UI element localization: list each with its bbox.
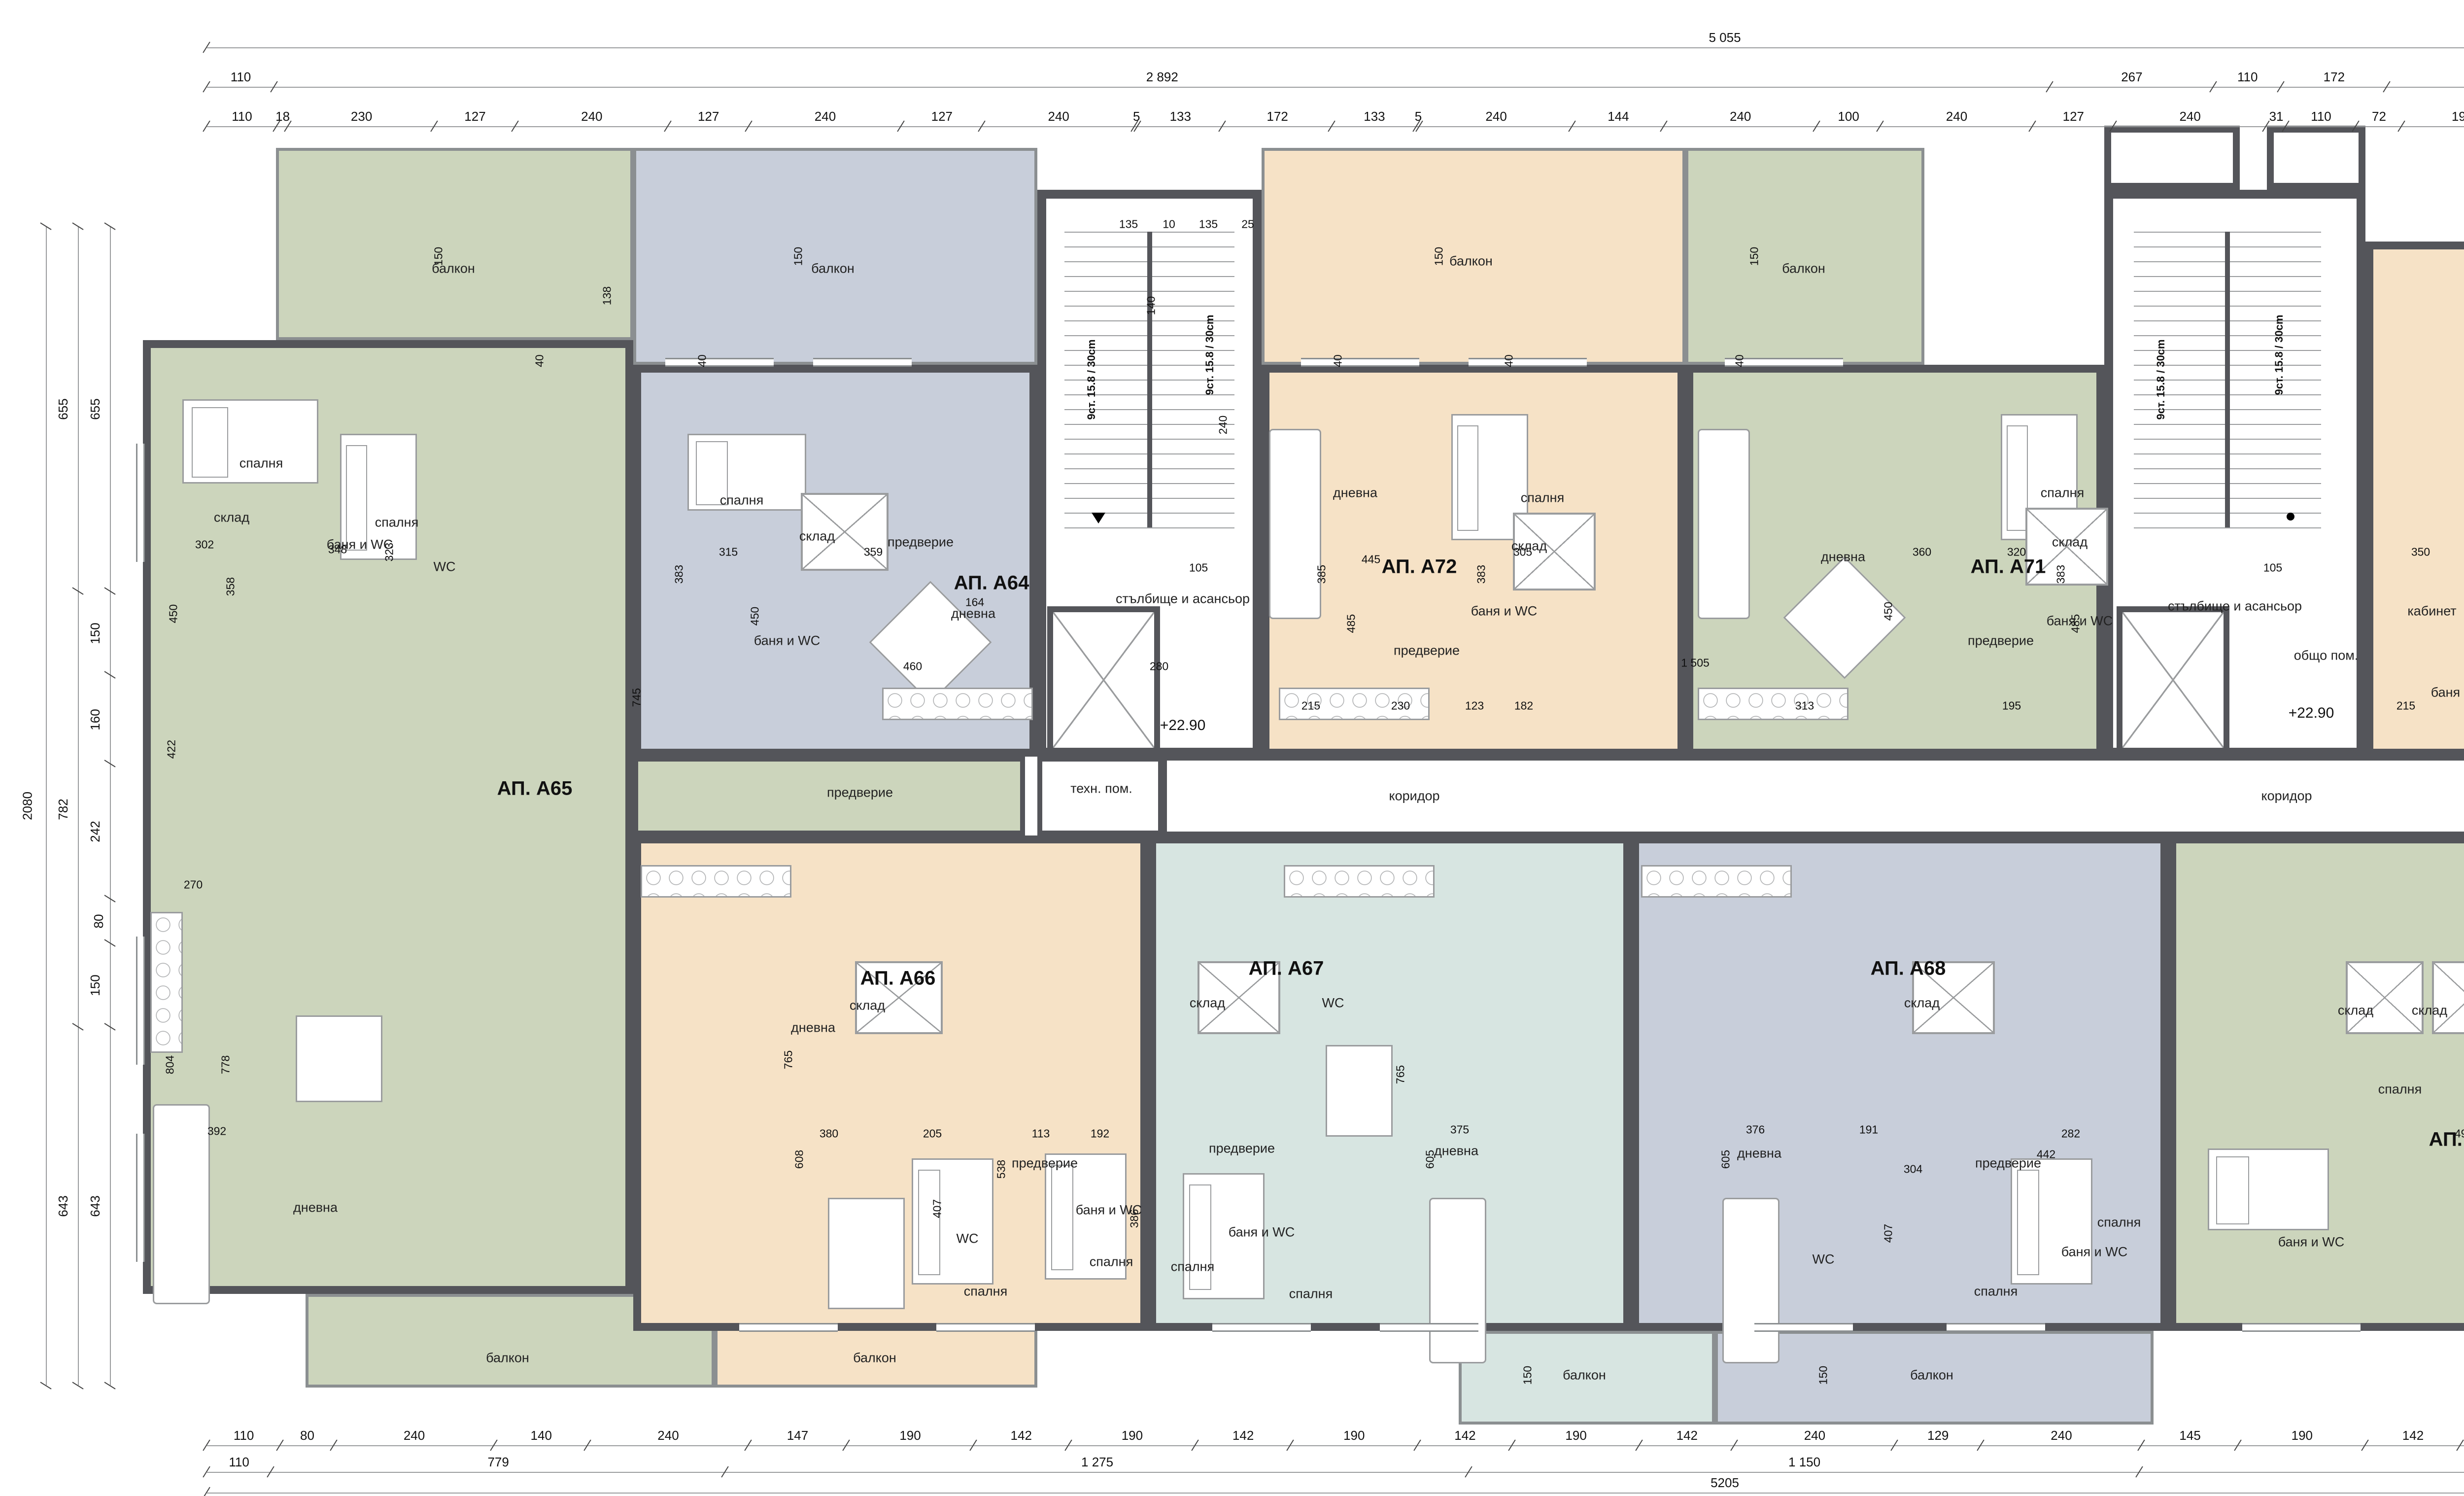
room-label: спалня — [720, 493, 763, 508]
dimension-number: 383 — [2054, 565, 2068, 584]
sofa-icon — [1429, 1198, 1486, 1363]
dim-segment: 242 — [91, 764, 111, 899]
storage-icon — [2432, 961, 2464, 1034]
dimension-number: 40 — [1733, 354, 1746, 367]
dim-segment: 5205 — [207, 1476, 2464, 1494]
room-label: дневна — [1333, 486, 1377, 501]
room-label: спалня — [2041, 486, 2084, 501]
dimension-number: 1 505 — [1681, 657, 1710, 670]
dimension-number: 359 — [864, 546, 883, 559]
stair-divider — [1147, 232, 1152, 527]
room-label: балкон — [486, 1351, 529, 1366]
dim-value: 240 — [815, 109, 836, 124]
dimension-number: 605 — [1719, 1150, 1733, 1169]
room-label: спалня — [240, 456, 283, 471]
dim-segment: 127 — [668, 108, 749, 127]
dim-segment: 190 — [2238, 1427, 2365, 1446]
dimension-number: 215 — [2396, 699, 2415, 713]
dim-value: 655 — [56, 398, 71, 419]
dim-value: 147 — [787, 1428, 808, 1443]
dim-segment: 655 — [59, 227, 79, 591]
dimension-number: 123 — [1465, 699, 1484, 713]
room-label: коридор — [2261, 789, 2312, 804]
room-label: дневна — [293, 1200, 338, 1216]
dimension-number: 348 — [328, 543, 347, 557]
room-label: баня и WC — [2431, 685, 2464, 700]
dimension-number: 608 — [793, 1150, 806, 1169]
dim-segment: 142 — [1196, 1427, 1291, 1446]
dim-value: 31 — [2269, 109, 2284, 124]
dim-segment: 1 275 — [725, 1454, 1469, 1473]
dimension-number: 150 — [1521, 1366, 1535, 1385]
dim-value: 144 — [1608, 109, 1629, 124]
bed-icon — [912, 1158, 993, 1285]
dim-segment: 2 892 — [274, 69, 2050, 88]
room-label: предверие — [1968, 633, 2034, 649]
dim-segment: 190 — [2402, 108, 2464, 127]
dim-value: 643 — [56, 1195, 71, 1217]
dimension-number: 150 — [1433, 247, 1446, 266]
room-label: баня и WC — [754, 633, 820, 649]
room-label: стълбище и асансьор — [2168, 599, 2302, 614]
dim-segment: 127 — [901, 108, 982, 127]
dim-segment: 142 — [974, 1427, 1069, 1446]
dimension-number: 150 — [1817, 1366, 1830, 1385]
room-label: спалня — [2378, 1082, 2422, 1097]
dimension-number: 407 — [1882, 1224, 1895, 1243]
dim-segment: 643 — [59, 1027, 79, 1385]
dim-value: 127 — [2063, 109, 2084, 124]
dimension-number: 40 — [533, 354, 547, 367]
dim-value: 190 — [2292, 1428, 2313, 1443]
room-label: стълбище и асансьор — [1116, 591, 1250, 607]
room-label: склад — [2052, 535, 2088, 550]
dim-segment: 172 — [1223, 108, 1332, 127]
dim-segment: 127 — [435, 108, 515, 127]
dimension-number: 302 — [195, 538, 214, 552]
dim-value: 127 — [931, 109, 953, 124]
room-label: баня и WC — [1229, 1225, 1295, 1240]
dim-value: 2 892 — [1146, 70, 1178, 85]
apartment-label: АП. А66 — [860, 968, 936, 990]
dimension-number: 150 — [1748, 247, 1761, 266]
dimension-number: 240 — [1217, 416, 1230, 434]
window-icon — [665, 358, 774, 367]
dimension-number: 450 — [1882, 602, 1895, 621]
apartment-label: АП. А65 — [497, 778, 573, 800]
kitchen-counter-icon — [150, 912, 183, 1053]
dim-value: 110 — [229, 1455, 249, 1470]
dimension-number: 778 — [219, 1055, 233, 1074]
window-icon — [2242, 1323, 2361, 1332]
dim-segment: 190 — [1512, 1427, 1640, 1446]
room-label: дневна — [1737, 1146, 1781, 1161]
elevator-icon — [2117, 606, 2229, 754]
dim-segment: 142 — [1640, 1427, 1735, 1446]
dim-value: 267 — [2121, 70, 2142, 85]
dim-segment: 240 — [1664, 108, 1817, 127]
dimension-number: 113 — [1032, 1127, 1050, 1141]
dimension-number: 383 — [1475, 565, 1488, 584]
room-label: балкон — [811, 261, 855, 277]
dim-segment: 142 — [2365, 1427, 2461, 1446]
window-icon — [1212, 1323, 1311, 1332]
dim-value: 80 — [300, 1428, 314, 1443]
dim-value: 142 — [1011, 1428, 1032, 1443]
room-label: спалня — [1090, 1254, 1133, 1270]
dimension-number: 150 — [792, 247, 805, 266]
room-label: балкон — [1563, 1368, 1606, 1383]
dimension-number: 450 — [167, 604, 180, 623]
dim-value: 110 — [2237, 70, 2258, 85]
dimension-number: 804 — [164, 1055, 177, 1074]
dim-segment: 133 — [1138, 108, 1223, 127]
kitchen-counter-icon — [1698, 688, 1848, 720]
dimension-number: 164 — [965, 596, 984, 609]
dim-segment: 172 — [2281, 69, 2387, 88]
dim-segment: 110 — [2286, 108, 2356, 127]
room-label: балкон — [1449, 254, 1493, 269]
room-label: дневна — [1434, 1144, 1478, 1159]
dimension-number: 135 — [1119, 218, 1138, 231]
dim-segment: 1 394 — [2387, 69, 2464, 88]
dim-segment: 190 — [2461, 1427, 2464, 1446]
dining-table-icon — [296, 1015, 382, 1102]
window-icon — [136, 1134, 145, 1262]
room-label: предверие — [1975, 1156, 2041, 1171]
room-label: WC — [434, 559, 456, 575]
apartment-label: АП. А67 — [1249, 958, 1324, 980]
dim-value: 240 — [1730, 109, 1751, 124]
kitchen-counter-icon — [1284, 865, 1435, 898]
dim-segment: 142 — [1418, 1427, 1513, 1446]
room-label: дневна — [791, 1020, 835, 1036]
dim-segment: 2080 — [27, 227, 47, 1385]
bed-icon — [2208, 1148, 2329, 1230]
floor-plan-canvas: АП. А64АП. А65АП. А66АП. А67АП. А68АП. А… — [0, 0, 2464, 1496]
room-label: предверие — [888, 535, 954, 550]
dim-segment: 150 — [91, 943, 111, 1027]
dim-segment: 240 — [334, 1427, 495, 1446]
dim-segment: 782 — [59, 591, 79, 1027]
dimension-number: 376 — [1746, 1123, 1765, 1137]
dimension-number: 442 — [2037, 1148, 2055, 1161]
dim-segment: 5 055 — [207, 30, 2464, 48]
dimension-number: 407 — [931, 1199, 944, 1218]
dim-value: 110 — [232, 109, 252, 124]
dimension-number: 538 — [995, 1160, 1008, 1179]
dim-value: 240 — [657, 1428, 679, 1443]
dim-value: 18 — [275, 109, 290, 124]
dimension-number: 485 — [2069, 614, 2083, 633]
window-icon — [1754, 1323, 1853, 1332]
dimension-number: 215 — [1301, 699, 1320, 713]
dim-segment: 240 — [515, 108, 668, 127]
apartment-label: АП. А71 — [1971, 556, 2046, 578]
dim-value: 172 — [1266, 109, 1288, 124]
dim-value: 133 — [1364, 109, 1385, 124]
window-icon — [813, 358, 912, 367]
dim-segment: 240 — [1735, 1427, 1895, 1446]
dim-value: 655 — [88, 398, 103, 419]
dimension-number: 282 — [2061, 1127, 2080, 1141]
room-label: общо пом. — [2294, 648, 2359, 663]
dim-value: 242 — [88, 821, 103, 842]
elevation-mark: +22.90 — [1160, 717, 1206, 734]
dim-value: 150 — [88, 623, 103, 644]
dim-chain-bottom-major: 1107791 2751 1501 308583 — [207, 1455, 2464, 1473]
dim-value: 142 — [2402, 1428, 2424, 1443]
dim-segment: 80 — [280, 1427, 334, 1446]
dim-segment: 240 — [982, 108, 1135, 127]
dim-chain-bottom-detail: 1108024014024014719014219014219014219014… — [207, 1428, 2464, 1446]
dim-segment: 190 — [1291, 1427, 1418, 1446]
dim-segment: 133 — [1332, 108, 1417, 127]
elevation-mark: +22.90 — [2289, 705, 2334, 722]
dimension-number: 182 — [1514, 699, 1533, 713]
dimension-number: 386 — [1128, 1209, 1141, 1228]
dimension-number: 230 — [1391, 699, 1410, 713]
room-label: кабинет — [2407, 604, 2456, 619]
dimension-number: 140 — [1145, 296, 1158, 315]
window-icon — [739, 1323, 838, 1332]
dimension-number: 40 — [1332, 354, 1345, 367]
dim-value: 172 — [2324, 70, 2345, 85]
dim-value: 72 — [2372, 109, 2386, 124]
room-label: балкон — [1910, 1368, 1953, 1383]
stair-core-2-tower — [2267, 126, 2365, 190]
dim-value: 127 — [698, 109, 719, 124]
room-label: склад — [1904, 996, 1940, 1011]
sofa-icon — [153, 1104, 210, 1304]
dim-value: 142 — [1232, 1428, 1254, 1443]
room-label: баня и WC — [1471, 604, 1537, 619]
sofa-icon — [1698, 429, 1750, 619]
dimension-number: 350 — [2411, 546, 2430, 559]
dim-value: 142 — [1454, 1428, 1475, 1443]
dimension-number: 605 — [1424, 1150, 1437, 1169]
dim-segment: 150 — [91, 591, 111, 675]
dim-value: 127 — [464, 109, 485, 124]
dim-value: 240 — [1804, 1428, 1825, 1443]
balcony-a65-top — [276, 148, 633, 340]
dim-segment: 18 — [277, 108, 288, 127]
dim-chain-top-detail: 1101823012724012724012724051331721335240… — [207, 109, 2464, 127]
dimension-number: 315 — [719, 546, 738, 559]
kitchen-counter-icon — [882, 688, 1033, 720]
apartment-label: АП. А68 — [1871, 958, 1946, 980]
dimension-number: 304 — [1904, 1163, 1922, 1176]
balcony-a64-top — [633, 148, 1037, 365]
dim-segment: 140 — [494, 1427, 588, 1446]
dim-value: 80 — [91, 914, 106, 928]
dim-segment: 147 — [749, 1427, 847, 1446]
room-label: спалня — [1289, 1287, 1333, 1302]
dimension-number: 445 — [1362, 553, 1380, 566]
dim-segment: 240 — [2114, 108, 2266, 127]
dimension-number: 493 — [2455, 1127, 2464, 1141]
dimension-number: 383 — [673, 565, 686, 584]
dim-value: 779 — [487, 1455, 509, 1470]
stair-note: 9ст. 15.8 / 30cm — [2155, 340, 2167, 420]
dim-value: 1 150 — [1788, 1455, 1820, 1470]
dim-chain-top-major: 1102 8922671101721 394 — [207, 70, 2464, 88]
stair-arrow-icon — [1092, 513, 1105, 523]
room-label: склад — [1190, 996, 1225, 1011]
dimension-number: 485 — [1345, 614, 1358, 633]
dimension-number: 205 — [923, 1127, 942, 1141]
dim-value: 190 — [1122, 1428, 1143, 1443]
room-label: WC — [1322, 996, 1344, 1011]
dim-segment: 100 — [1817, 108, 1881, 127]
window-icon — [1380, 1323, 1478, 1332]
dim-value: 190 — [2452, 109, 2464, 124]
room-label: спалня — [1521, 490, 1564, 506]
stair-note: 9ст. 15.8 / 30cm — [2273, 315, 2286, 395]
dim-segment: 190 — [847, 1427, 974, 1446]
dim-value: 190 — [1565, 1428, 1586, 1443]
dimension-number: 10 — [1163, 218, 1175, 231]
dimension-number: 385 — [1315, 565, 1329, 584]
room-label: дневна — [1821, 550, 1865, 565]
dimension-number: 105 — [1189, 561, 1208, 575]
apartment-label: АП. А64 — [954, 572, 1029, 594]
stair-divider — [2225, 232, 2230, 527]
dim-value: 140 — [531, 1428, 552, 1443]
room-label: WC — [957, 1231, 979, 1247]
dimension-number: 305 — [1513, 546, 1532, 559]
window-icon — [136, 937, 145, 1065]
room-label: предверие — [1394, 643, 1460, 659]
dimension-number: 150 — [432, 247, 445, 266]
dim-value: 129 — [1927, 1428, 1949, 1443]
dimension-number: 135 — [1199, 218, 1218, 231]
dim-segment: 779 — [271, 1454, 725, 1473]
room-label: спалня — [375, 515, 418, 530]
dimension-number: 765 — [1394, 1065, 1407, 1084]
dimension-number: 192 — [1091, 1127, 1109, 1141]
window-icon — [936, 1323, 1035, 1332]
dimension-number: 320 — [2007, 546, 2026, 559]
dim-value: 110 — [234, 1428, 254, 1443]
window-icon — [136, 444, 145, 562]
room-label: склад — [850, 998, 885, 1013]
dimension-number: 460 — [903, 660, 922, 673]
room-label: баня и WC — [2061, 1245, 2127, 1260]
stair-note: 9ст. 15.8 / 30cm — [1085, 340, 1098, 420]
dim-value: 643 — [88, 1195, 103, 1217]
dim-value: 145 — [2179, 1428, 2200, 1443]
dimension-number: 191 — [1859, 1123, 1878, 1137]
dim-chain-left-overall: 2080 — [27, 227, 46, 1385]
stair-dot-icon — [2287, 513, 2294, 521]
room-label: техн. пом. — [1070, 781, 1132, 797]
dim-segment: 144 — [1573, 108, 1664, 127]
room-label: спалня — [1974, 1284, 2018, 1299]
dimension-number: 380 — [820, 1127, 838, 1141]
dim-chain-bottom-overall: 5205 — [207, 1477, 2464, 1494]
window-icon — [1947, 1323, 2045, 1332]
dimension-number: 745 — [630, 688, 644, 707]
dim-value: 110 — [231, 70, 251, 85]
dim-segment: 240 — [749, 108, 902, 127]
storage-icon — [2346, 961, 2424, 1034]
sofa-icon — [1269, 429, 1321, 619]
room-label: коридор — [1389, 789, 1439, 804]
dim-chain-left-detail: 65515016024280150643 — [91, 227, 110, 1385]
room-label: баня и WC — [2278, 1235, 2344, 1250]
dim-segment: 80 — [91, 899, 111, 943]
dimension-number: 105 — [2263, 561, 2282, 575]
dim-chain-left-major: 655782643 — [59, 227, 78, 1385]
dim-segment: 190 — [1069, 1427, 1196, 1446]
dim-segment: 127 — [2033, 108, 2114, 127]
dim-segment: 160 — [91, 675, 111, 765]
dim-segment: 655 — [91, 227, 111, 591]
dim-value: 240 — [581, 109, 602, 124]
dimension-number: 358 — [224, 577, 238, 596]
dimension-number: 40 — [1503, 354, 1516, 367]
room-label: спалня — [2097, 1215, 2141, 1230]
dim-value: 240 — [404, 1428, 425, 1443]
dimension-number: 138 — [601, 286, 614, 305]
room-label: предверие — [827, 785, 893, 800]
dimension-number: 392 — [207, 1125, 226, 1138]
dim-segment: 240 — [1420, 108, 1573, 127]
dim-value: 240 — [1485, 109, 1506, 124]
apartment-label: АП. А72 — [1382, 556, 1457, 578]
dimension-number: 25 — [1241, 218, 1254, 231]
dining-table-icon — [1326, 1045, 1393, 1137]
dimension-number: 195 — [2002, 699, 2021, 713]
room-label: склад — [799, 529, 835, 544]
dim-segment: 643 — [91, 1027, 111, 1385]
dim-segment: 110 — [2214, 69, 2281, 88]
dimension-number: 270 — [184, 878, 203, 892]
dim-value: 1 275 — [1081, 1455, 1113, 1470]
dim-value: 5205 — [1711, 1475, 1739, 1491]
dim-segment: 1 150 — [1469, 1454, 2140, 1473]
dim-value: 240 — [1048, 109, 1069, 124]
room-label: склад — [2338, 1003, 2373, 1018]
dim-value: 782 — [56, 799, 71, 820]
dining-table-icon — [828, 1198, 905, 1309]
dimension-number: 40 — [696, 354, 709, 367]
dimension-number: 360 — [1913, 546, 1931, 559]
dimension-number: 765 — [782, 1050, 795, 1069]
dimension-number: 323 — [383, 543, 396, 561]
room-label: спалня — [1171, 1259, 1214, 1275]
dim-segment: 72 — [2356, 108, 2402, 127]
dim-value: 150 — [88, 974, 103, 996]
apartment-a70-area — [2365, 242, 2464, 757]
dim-value: 5 055 — [1709, 30, 1741, 45]
dim-chain-top-overall: 5 055 — [207, 31, 2464, 48]
dim-value: 142 — [1677, 1428, 1698, 1443]
dimension-number: 450 — [749, 607, 762, 626]
bed-icon — [2011, 1158, 2092, 1285]
dim-segment: 240 — [1981, 1427, 2142, 1446]
dim-segment: 1 308 — [2140, 1454, 2464, 1473]
room-label: WC — [1813, 1252, 1835, 1267]
dim-value: 160 — [88, 709, 103, 730]
elevator-icon — [1047, 606, 1160, 754]
dim-segment: 31 — [2266, 108, 2286, 127]
window-icon — [1469, 358, 1587, 367]
room-label: балкон — [853, 1351, 896, 1366]
dim-value: 133 — [1170, 109, 1191, 124]
dim-value: 190 — [1343, 1428, 1365, 1443]
